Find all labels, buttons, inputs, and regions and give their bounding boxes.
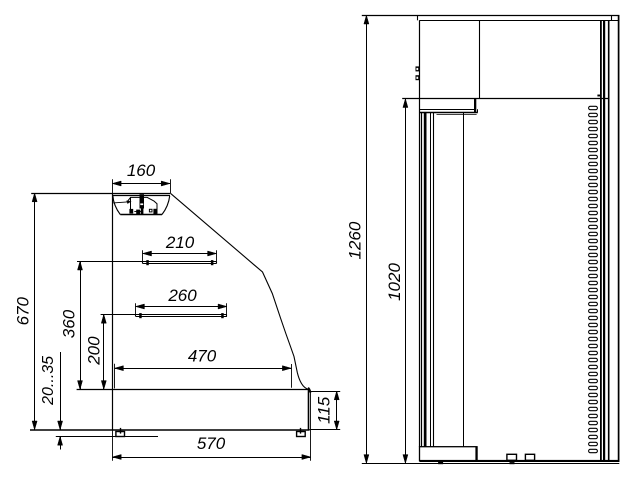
svg-text:1260: 1260 — [345, 221, 364, 259]
svg-text:200: 200 — [84, 336, 103, 366]
svg-text:670: 670 — [13, 296, 32, 325]
svg-text:470: 470 — [188, 347, 217, 366]
svg-text:260: 260 — [167, 286, 197, 305]
svg-text:210: 210 — [165, 233, 195, 252]
svg-text:160: 160 — [127, 161, 156, 180]
svg-text:1020: 1020 — [385, 263, 404, 301]
svg-text:115: 115 — [314, 396, 333, 424]
svg-text:20...35: 20...35 — [40, 356, 57, 406]
svg-text:570: 570 — [197, 434, 226, 453]
svg-text:360: 360 — [59, 309, 78, 338]
